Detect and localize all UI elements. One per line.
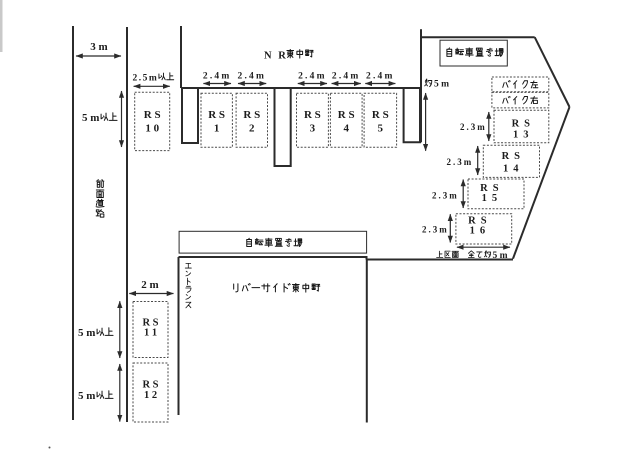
svg-text:2.4m: 2.4m [203,72,232,82]
svg-text:2: 2 [249,123,255,135]
svg-text:1 2: 1 2 [144,390,157,401]
svg-text:3: 3 [310,123,316,135]
svg-text:5 m: 5 m [78,327,95,339]
svg-text:2.3m: 2.3m [460,122,487,132]
svg-text:R S: R S [243,109,260,121]
svg-text:1 4: 1 4 [503,164,520,175]
svg-text:5 m: 5 m [82,112,99,124]
svg-text:R S: R S [304,109,321,121]
svg-text:R S: R S [512,118,532,129]
svg-text:R S: R S [338,109,355,121]
svg-text:2.4m: 2.4m [332,72,361,82]
svg-text:5: 5 [378,123,384,135]
svg-text:2.4m: 2.4m [238,72,267,82]
svg-text:1 1: 1 1 [144,327,157,338]
svg-text:N R: N R [264,51,288,62]
svg-text:R S: R S [208,109,225,121]
svg-text:2.3m: 2.3m [432,191,459,201]
svg-text:2.3m: 2.3m [447,157,474,167]
svg-text:5 m: 5 m [493,251,508,261]
svg-text:1 5: 1 5 [482,193,499,204]
svg-text:1: 1 [214,123,220,135]
svg-text:2 m: 2 m [141,279,158,291]
svg-text:2.4m: 2.4m [298,72,327,82]
svg-text:1 3: 1 3 [513,129,530,140]
svg-text:R S: R S [142,380,158,391]
svg-text:R S: R S [502,151,522,162]
svg-text:2.5m: 2.5m [133,74,159,84]
svg-text:3 m: 3 m [90,41,107,53]
svg-text:5 m: 5 m [434,80,449,90]
svg-text:2.4m: 2.4m [366,72,395,82]
svg-text:5 m: 5 m [78,390,95,402]
svg-text:1 0: 1 0 [145,123,159,135]
svg-text:R S: R S [372,109,389,121]
svg-text:R S: R S [144,109,161,121]
svg-text:2.3m: 2.3m [422,225,449,235]
svg-text:4: 4 [343,123,349,135]
svg-text:1 6: 1 6 [470,225,487,236]
